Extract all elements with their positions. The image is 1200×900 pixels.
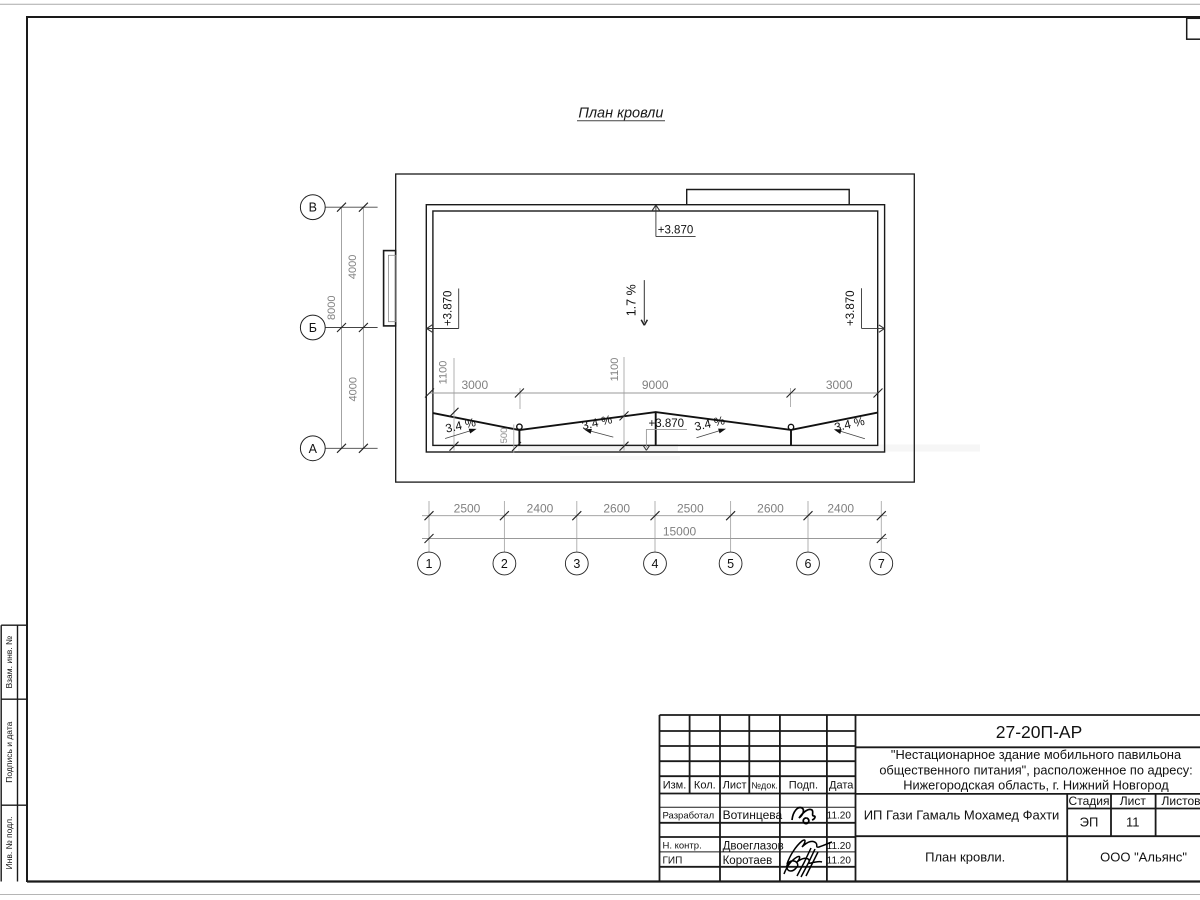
svg-text:6: 6	[805, 557, 812, 571]
svg-text:3000: 3000	[461, 378, 488, 392]
svg-text:План кровли.: План кровли.	[925, 849, 1005, 864]
svg-text:4: 4	[652, 557, 659, 571]
svg-text:Двоеглазов: Двоеглазов	[723, 840, 784, 852]
svg-text:Подп.: Подп.	[789, 779, 818, 791]
svg-text:общественного питания", распол: общественного питания", расположенное по…	[879, 762, 1192, 777]
svg-text:План кровли: План кровли	[578, 106, 663, 122]
svg-text:ИП Гази Гамаль Мохамед Фахти: ИП Гази Гамаль Мохамед Фахти	[864, 808, 1060, 823]
svg-text:500: 500	[499, 428, 510, 444]
svg-text:Разработал: Разработал	[663, 810, 715, 821]
svg-text:ЭП: ЭП	[1080, 815, 1099, 830]
svg-text:2: 2	[501, 557, 508, 571]
svg-text:2500: 2500	[677, 502, 704, 516]
svg-text:2500: 2500	[454, 502, 481, 516]
svg-text:4000: 4000	[348, 377, 360, 401]
svg-text:+3.870: +3.870	[845, 290, 857, 326]
svg-text:5: 5	[727, 557, 734, 571]
svg-text:1100: 1100	[438, 361, 450, 385]
svg-text:Подпись и дата: Подпись и дата	[4, 721, 14, 782]
svg-text:В: В	[309, 201, 317, 215]
svg-text:Коротаев: Коротаев	[723, 855, 773, 867]
svg-text:Кол.: Кол.	[694, 779, 716, 791]
svg-text:ГИП: ГИП	[663, 855, 683, 866]
svg-text:Вотинцева: Вотинцева	[723, 808, 783, 822]
svg-text:2600: 2600	[603, 502, 630, 516]
svg-text:Изм.: Изм.	[663, 779, 687, 791]
svg-text:Дата: Дата	[829, 779, 854, 791]
svg-text:2400: 2400	[827, 502, 854, 516]
svg-text:Стадия: Стадия	[1069, 794, 1110, 808]
svg-text:Взам. инв. №: Взам. инв. №	[4, 636, 14, 689]
svg-text:11.20: 11.20	[827, 811, 852, 822]
svg-text:Лист: Лист	[1120, 794, 1147, 808]
svg-text:27-20П-АР: 27-20П-АР	[996, 722, 1083, 742]
svg-text:"Нестационарное здание мобильн: "Нестационарное здание мобильного павиль…	[891, 747, 1182, 762]
svg-text:Н. контр.: Н. контр.	[663, 841, 702, 852]
svg-text:7: 7	[878, 557, 885, 571]
svg-text:3: 3	[573, 557, 580, 571]
svg-text:+3.870: +3.870	[658, 224, 694, 236]
svg-text:1: 1	[426, 557, 433, 571]
svg-text:Б: Б	[309, 321, 317, 335]
svg-text:+3.870: +3.870	[649, 418, 685, 430]
svg-text:ООО "Альянс": ООО "Альянс"	[1100, 849, 1187, 864]
svg-text:11: 11	[1126, 815, 1140, 830]
svg-text:А: А	[309, 442, 318, 456]
svg-text:Листов: Листов	[1162, 794, 1200, 808]
svg-text:4000: 4000	[347, 255, 359, 279]
svg-text:1100: 1100	[609, 358, 621, 382]
svg-text:№док.: №док.	[751, 780, 777, 790]
svg-text:15000: 15000	[663, 525, 697, 539]
svg-text:3.4 %: 3.4 %	[444, 415, 477, 436]
svg-text:9000: 9000	[642, 378, 669, 392]
svg-text:Лист: Лист	[723, 779, 747, 791]
svg-text:Инв. № подл.: Инв. № подл.	[4, 817, 14, 870]
svg-text:1.7 %: 1.7 %	[624, 284, 638, 316]
svg-text:2600: 2600	[757, 502, 784, 516]
svg-text:8000: 8000	[326, 296, 338, 320]
svg-text:3000: 3000	[826, 378, 853, 392]
svg-text:+3.870: +3.870	[442, 291, 454, 327]
svg-text:11.20: 11.20	[827, 855, 852, 866]
svg-text:Нижегородская область, г. Нижн: Нижегородская область, г. Нижний Новгоро…	[903, 777, 1169, 792]
svg-text:2400: 2400	[527, 502, 554, 516]
